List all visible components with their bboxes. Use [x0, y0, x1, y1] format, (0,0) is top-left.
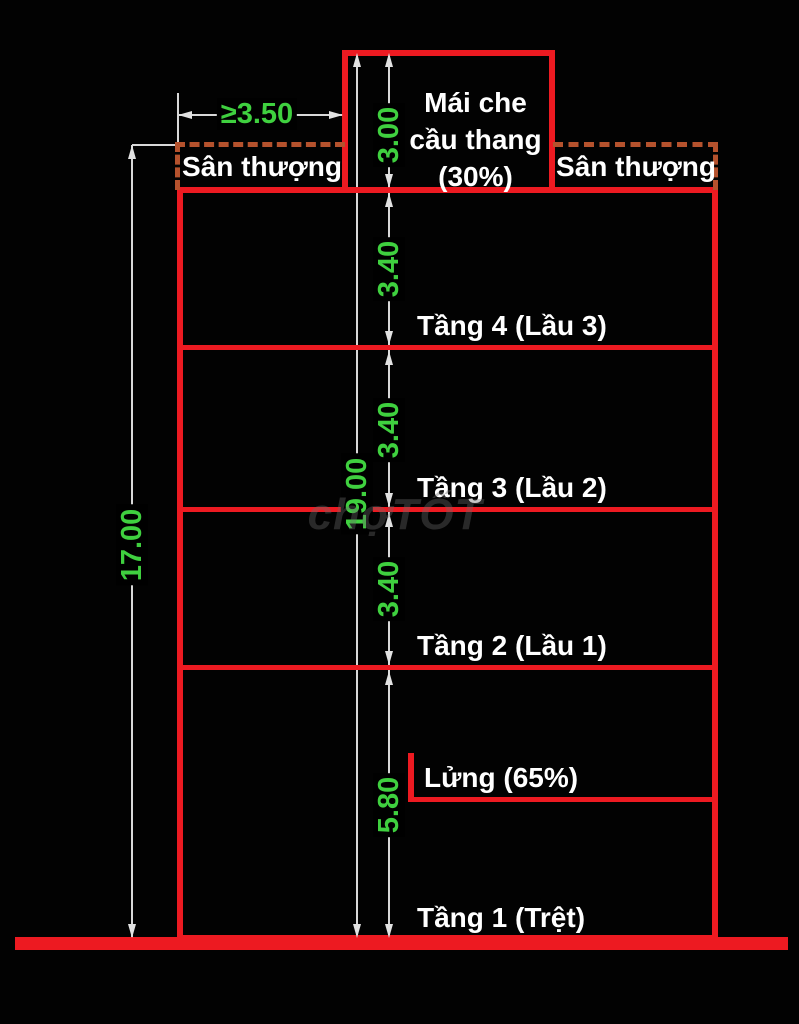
- dim-arrow: [128, 924, 136, 938]
- dim-floor2-height: 3.40: [373, 557, 405, 621]
- dim-stair-roof-height: 3.00: [373, 103, 405, 167]
- chotot-watermark: chợTỐT: [308, 490, 483, 540]
- dim-arrow: [353, 924, 361, 938]
- dim-floor3-height: 3.40: [373, 398, 405, 462]
- dim-arrow: [329, 111, 343, 119]
- floor1-label: Tầng 1 (Trệt): [417, 901, 585, 935]
- floor-line-4: [180, 345, 715, 350]
- dim-ground-floor-height: 5.80: [373, 773, 405, 837]
- building-outline: [177, 187, 718, 941]
- stair-roof-label-line1: Mái che: [398, 84, 553, 121]
- dim-tick-17m-top: [132, 144, 176, 146]
- dim-arrow: [385, 193, 393, 207]
- mezzanine-line: [408, 797, 715, 802]
- floor2-label: Tầng 2 (Lầu 1): [417, 629, 607, 663]
- terrace-left-label: Sân thượng: [182, 150, 342, 184]
- mezzanine-vertical: [408, 753, 414, 802]
- dim-arrow: [353, 53, 361, 67]
- dim-roof-min-width: ≥3.50: [217, 98, 297, 130]
- dim-floor4-height: 3.40: [373, 237, 405, 301]
- dim-arrow: [385, 53, 393, 67]
- floor4-label: Tầng 4 (Lầu 3): [417, 309, 607, 343]
- dim-arrow: [385, 351, 393, 365]
- terrace-right-label: Sân thượng: [556, 150, 716, 184]
- dim-total-to-terrace: 17.00: [116, 505, 148, 586]
- dim-arrow: [385, 651, 393, 665]
- stair-roof-label-line3: (30%): [398, 158, 553, 195]
- floor-line-2: [180, 665, 715, 670]
- stair-roof-label-line2: cầu thang: [398, 121, 553, 158]
- stair-roof-label: Mái che cầu thang (30%): [398, 84, 553, 195]
- elevation-drawing: ≥3.50 3.00 3.40 3.40 3.40 5.80 19.00 17.…: [0, 0, 799, 1024]
- dim-arrow: [178, 111, 192, 119]
- dim-arrow: [385, 331, 393, 345]
- dim-arrow: [385, 174, 393, 188]
- mezzanine-label: Lửng (65%): [424, 761, 578, 795]
- dim-arrow: [385, 924, 393, 938]
- dim-arrow: [385, 671, 393, 685]
- dim-arrow: [128, 145, 136, 159]
